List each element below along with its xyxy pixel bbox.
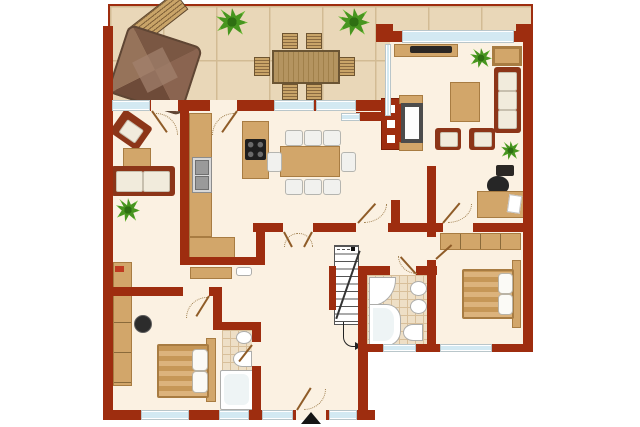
bathtub [220, 370, 254, 410]
door-opening [443, 223, 473, 232]
stair-marker [351, 247, 355, 251]
window [219, 410, 249, 420]
window [141, 410, 189, 420]
outdoor-chair [254, 57, 270, 76]
fireplace-hearth [401, 103, 423, 143]
wardrobe [440, 233, 521, 250]
window [329, 410, 357, 420]
dining-chair [267, 152, 282, 172]
door-opening [356, 223, 388, 232]
floorplan-canvas [0, 0, 640, 427]
window [262, 410, 293, 420]
cooktop [245, 139, 266, 160]
dining-table [280, 146, 340, 177]
dining-chair [304, 179, 322, 195]
pillow [192, 371, 208, 393]
fireplace-cap [399, 142, 423, 151]
washbasin [410, 281, 427, 296]
document [507, 194, 522, 214]
window [316, 100, 356, 111]
printer [496, 165, 514, 176]
parasol-top [132, 47, 178, 93]
wall-wc-right [252, 322, 261, 420]
wall-kitchen-south [180, 257, 265, 265]
outdoor-chair [306, 33, 322, 49]
window [112, 100, 150, 111]
dining-chair [323, 130, 341, 146]
wall-exterior-left [103, 26, 113, 420]
pillow [498, 294, 513, 315]
kitchen-sink [192, 157, 212, 193]
door-opening [283, 223, 313, 232]
wall-stair-stub [329, 266, 336, 310]
armchair [435, 128, 461, 150]
washbasin [410, 299, 427, 314]
wall-connector [256, 230, 265, 265]
outdoor-chair [282, 33, 298, 49]
tv [410, 46, 452, 53]
outdoor-chair [282, 84, 298, 100]
wall-corner-block [376, 24, 393, 42]
window-bathroom [383, 344, 416, 352]
window [274, 100, 314, 111]
hall-sideboard [190, 267, 232, 279]
window-living [402, 30, 514, 43]
glass-partition [341, 113, 360, 121]
wall-exterior-right [523, 26, 533, 352]
door-opening [183, 287, 209, 296]
coffee-table [450, 82, 480, 122]
wall-dining-stub [391, 200, 400, 232]
door-opening [427, 237, 436, 260]
entrance-arrow [301, 412, 321, 424]
outdoor-chair [339, 57, 355, 76]
toilet [403, 324, 423, 341]
wall-corner-block [516, 24, 533, 42]
outdoor-dining-table [272, 50, 340, 84]
dining-chair [323, 179, 341, 195]
wall-fireplace-stub [356, 112, 383, 121]
kitchen-lower-counter [189, 237, 235, 258]
corner-bathtub [369, 304, 401, 346]
washbasin [236, 331, 252, 344]
window-bedroom [440, 344, 492, 352]
dining-chair [285, 179, 303, 195]
shelf-item [115, 266, 124, 272]
outdoor-chair [306, 84, 322, 100]
pillow [192, 349, 208, 371]
armchair [469, 128, 495, 150]
wardrobe [113, 262, 132, 386]
armchair [492, 46, 522, 66]
loveseat-sofa [111, 166, 175, 196]
stool [134, 315, 152, 333]
door-opening [252, 342, 261, 366]
pillow [498, 273, 513, 294]
wall-office-divider [427, 166, 436, 232]
door-opening [151, 100, 178, 111]
glass-wall [385, 44, 391, 116]
dining-chair [341, 152, 356, 172]
dining-chair [304, 130, 322, 146]
sofa [494, 67, 521, 133]
wall-exterior-step [358, 344, 368, 420]
door-opening [210, 100, 237, 111]
hall-shelf [236, 267, 252, 276]
wall-bath-left [358, 266, 367, 352]
dining-chair [285, 130, 303, 146]
wall-sitting-kitchen [180, 111, 189, 265]
